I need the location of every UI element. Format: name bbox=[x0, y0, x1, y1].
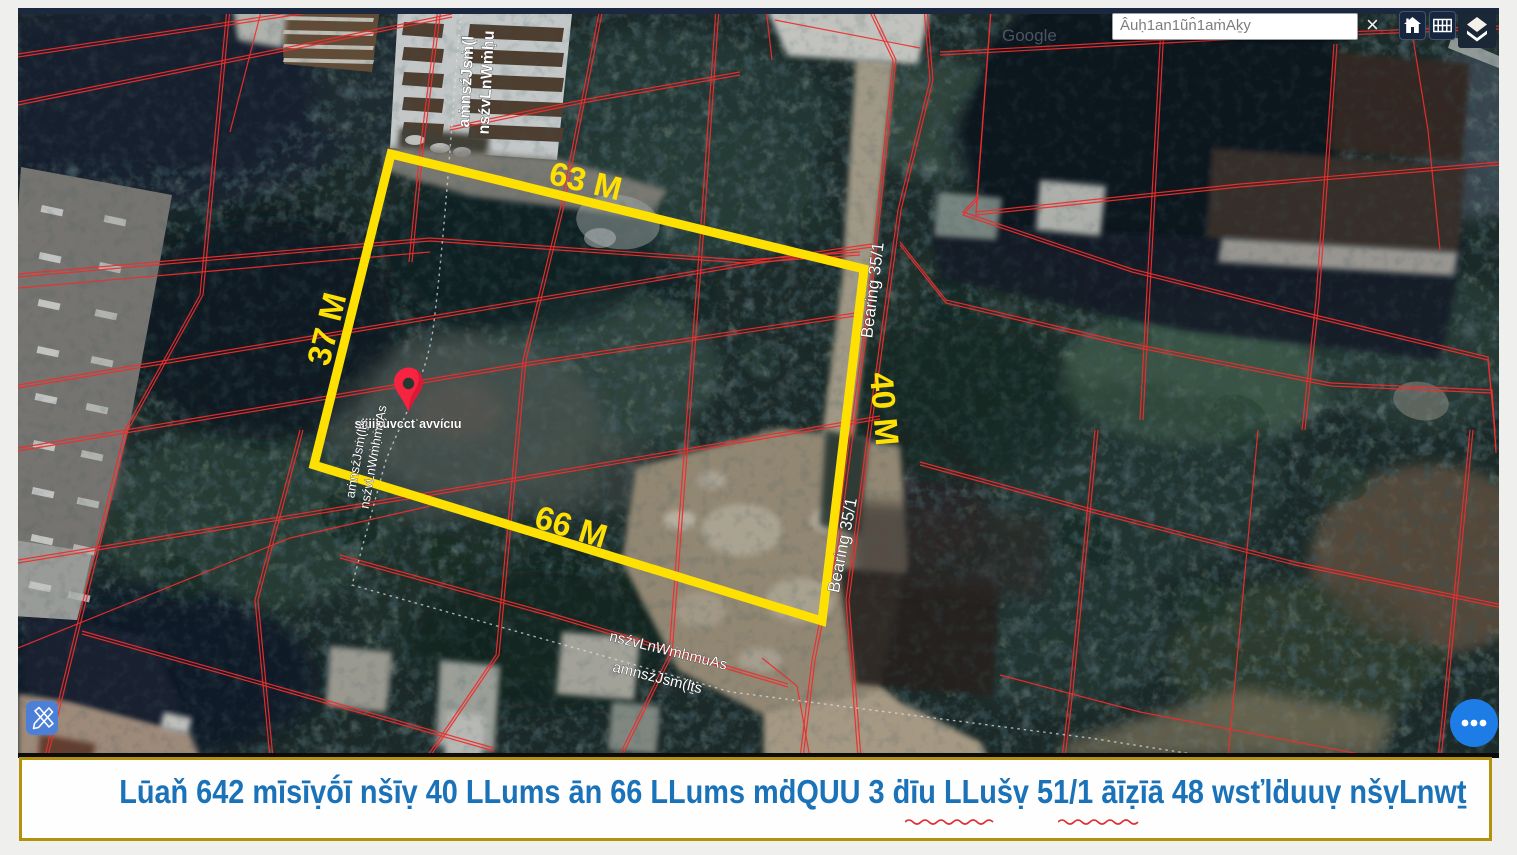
svg-text:Google: Google bbox=[1002, 26, 1057, 45]
svg-text:40 M: 40 M bbox=[863, 371, 906, 447]
